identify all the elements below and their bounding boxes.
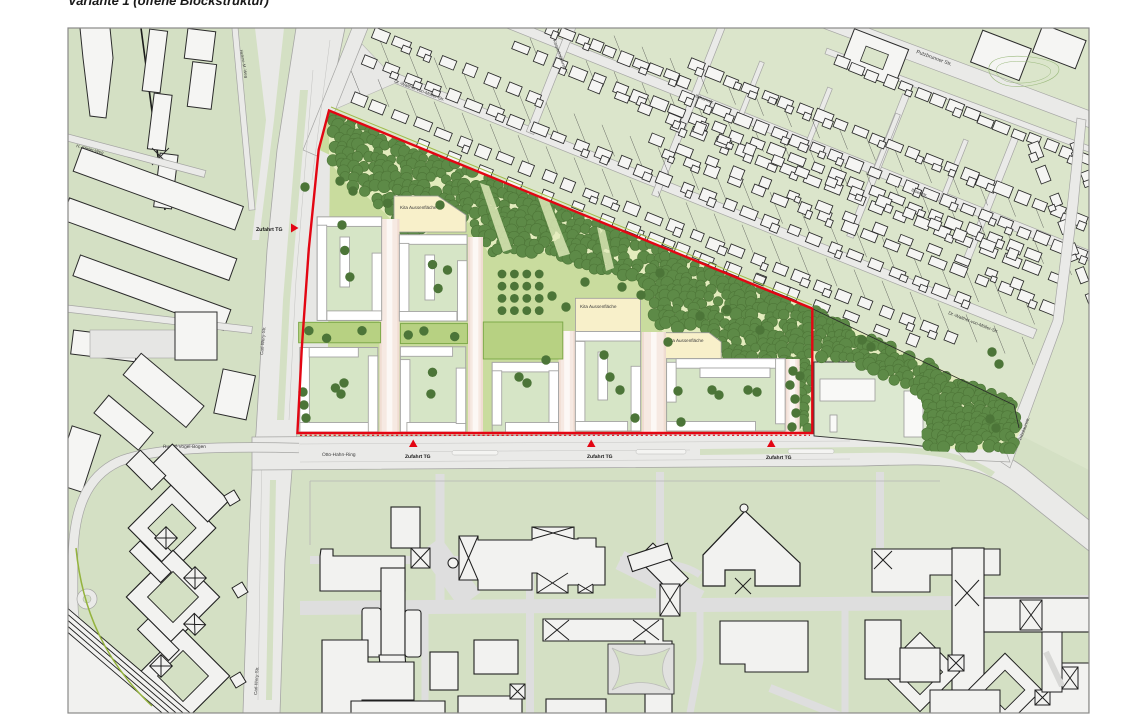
svg-text:Kita Aussenfläche: Kita Aussenfläche <box>580 304 617 309</box>
svg-text:Variante 1 (offene Blockstrukt: Variante 1 (offene Blockstruktur) <box>68 0 269 8</box>
svg-text:Zufahrt TG: Zufahrt TG <box>405 454 431 460</box>
svg-text:Kita Aussenfläche: Kita Aussenfläche <box>400 205 437 210</box>
svg-text:Zufahrt TG: Zufahrt TG <box>256 227 283 233</box>
svg-text:Otto-Hahn-Ring: Otto-Hahn-Ring <box>322 452 356 458</box>
svg-text:Zufahrt TG: Zufahrt TG <box>587 454 613 460</box>
svg-text:Zufahrt TG: Zufahrt TG <box>766 455 792 461</box>
